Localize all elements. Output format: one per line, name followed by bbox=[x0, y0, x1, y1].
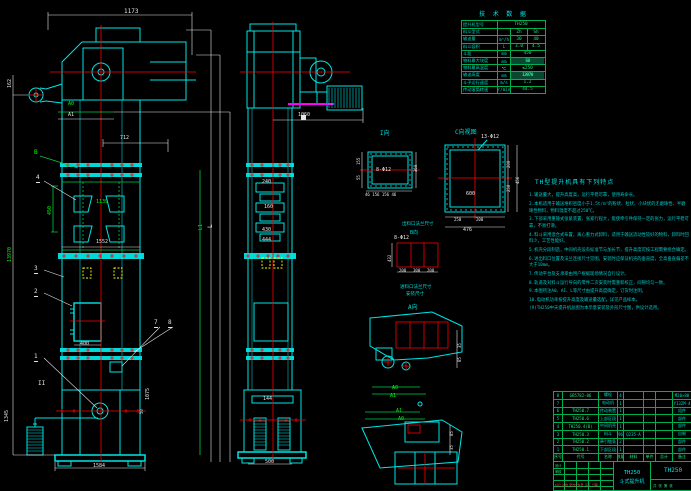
label-view-b: B向 bbox=[410, 231, 418, 236]
tech-table-row: 料斗容积L3.04.5 bbox=[462, 43, 545, 50]
tech-table-row: 料斗型式ZhSh bbox=[462, 28, 545, 35]
parts-list-cell bbox=[624, 423, 644, 430]
feature-note-item: 3.下部采用重锤式张紧装置，张紧行程大，能使牵引件保持一定的张力，运行平稳可靠，… bbox=[529, 217, 689, 230]
parts-list-cell: 上部区段 bbox=[599, 415, 618, 422]
tech-table-title: 技 术 数 据 bbox=[461, 9, 546, 18]
parts-list-cell bbox=[656, 400, 673, 407]
dim-1139: 1139 bbox=[96, 200, 108, 205]
dim-l: L bbox=[208, 224, 214, 228]
parts-list-cell bbox=[656, 392, 673, 399]
dim-1075: 1075 bbox=[146, 388, 151, 400]
dim-1345: 1345 bbox=[5, 410, 10, 422]
tech-cell: 输送量 bbox=[462, 36, 497, 42]
parts-list-table: 8GB5782-86螺栓4M20×807电动机1Y132M-46TH250.7传… bbox=[553, 391, 691, 462]
parts-list-row: 3TH250.3料斗96Q235-A自制 bbox=[554, 431, 691, 439]
dim-85-lower: 85 bbox=[450, 431, 454, 436]
dim-432: 432 bbox=[388, 255, 392, 262]
tech-table-row: 提升机型号TH250 bbox=[462, 21, 545, 28]
parts-list-row: 6TH250.7传动装置1组件 bbox=[554, 408, 691, 416]
tech-cell: 30 bbox=[510, 36, 527, 42]
cad-sheet: 1173162A0A1712B44501139155232400781II107… bbox=[0, 0, 691, 491]
tech-cell: mm bbox=[497, 58, 510, 64]
parts-list-cell bbox=[624, 392, 644, 399]
product-name: 斗式提升机 bbox=[619, 478, 644, 485]
dim-250r-c: 250 bbox=[507, 185, 511, 192]
balloon-1: 1 bbox=[34, 354, 38, 362]
tech-cell: 料斗型式 bbox=[462, 29, 497, 35]
tech-cell: 50 bbox=[510, 58, 544, 64]
note-inlet-size: 安装尺寸 bbox=[406, 293, 424, 298]
parts-list-cell: 部件 bbox=[673, 439, 691, 446]
parts-list-cell bbox=[656, 415, 673, 422]
dim-476-c: 476 bbox=[463, 228, 472, 233]
label-view-a: A向 bbox=[408, 305, 418, 311]
dim-200a: 200 bbox=[399, 269, 406, 273]
feature-note-item: 4.料斗采用混合式布置，离心重力式卸料，适用于输送流动性较好的物料，卸料时回料少… bbox=[529, 233, 689, 246]
tech-cell: m/s bbox=[497, 80, 510, 86]
label-a1-lower: A1 bbox=[396, 409, 402, 414]
parts-list-cell bbox=[644, 446, 656, 453]
note-8-phi12-i: 8-Φ12 bbox=[376, 168, 391, 173]
drawing-number: TH250 bbox=[664, 467, 682, 474]
note-inlet-flange: 进料口法兰尺寸 bbox=[400, 286, 432, 291]
tech-cell bbox=[497, 29, 510, 35]
tech-cell: 斗距 bbox=[462, 51, 497, 57]
dim-1584: 1584 bbox=[93, 464, 105, 469]
parts-list-cell: 中间机壳 bbox=[599, 423, 618, 430]
tech-table-grid: 提升机型号TH250料斗型式ZhSh输送量m³/h3040料斗容积L3.04.5… bbox=[461, 20, 546, 94]
tech-cell: ≤250 bbox=[510, 65, 544, 71]
parts-list-cell: 6 bbox=[554, 408, 563, 415]
dim-240: 240 bbox=[262, 180, 271, 185]
feature-notes-list: 1.输送量大，提升高度高，运行平稳可靠，使用寿命长。2.本机适用于输送堆积密度小… bbox=[529, 193, 689, 313]
dim-1060: 1060 bbox=[298, 113, 310, 118]
parts-list-cell: Q235-A bbox=[624, 431, 644, 438]
tech-cell: 传动滚筒转速 bbox=[462, 87, 497, 93]
dim-155-i: 155 bbox=[357, 158, 361, 165]
parts-list-row: 1TH250.1下部区段1部件 bbox=[554, 446, 691, 454]
dim-144: 144 bbox=[263, 397, 272, 402]
parts-list-cell bbox=[644, 392, 656, 399]
tech-cell: 13970 bbox=[510, 72, 544, 78]
dim-85-upper: 85 bbox=[458, 357, 462, 362]
tech-cell: 输送高度 bbox=[462, 72, 497, 78]
balloon-2: 2 bbox=[34, 289, 38, 297]
parts-list-cell: 下部区段 bbox=[599, 446, 618, 453]
parts-list-cell bbox=[624, 415, 644, 422]
parts-list-cell: 序号 bbox=[554, 454, 563, 461]
parts-list-cell: Y132M-4 bbox=[673, 400, 691, 407]
tech-cell: 3.0 bbox=[510, 44, 527, 50]
sheet-count: 共 张 第 张 bbox=[653, 483, 673, 488]
parts-list-cell: 牵引链条 bbox=[599, 439, 618, 446]
feature-note-item: 6.进出料口位置及法兰连接尺寸见图，安装时应保证机壳的垂直度，全高垂直偏差不大于… bbox=[529, 257, 689, 270]
dim-300a: 300 bbox=[413, 269, 420, 273]
parts-list-cell: 代号 bbox=[563, 454, 599, 461]
tech-cell: 1.2 bbox=[510, 80, 544, 86]
parts-list-cell bbox=[656, 408, 673, 415]
parts-list-cell bbox=[563, 400, 599, 407]
parts-list-row: 8GB5782-86螺栓4M20×80 bbox=[554, 392, 691, 400]
drawing-name-box: TH250 斗式提升机 bbox=[614, 462, 651, 491]
tech-cell: TH250 bbox=[497, 21, 544, 28]
tech-cell: 料斗容积 bbox=[462, 44, 497, 50]
parts-list-row: 4TH250.4(B)中间机壳1部件 bbox=[554, 423, 691, 431]
parts-list-cell: 螺栓 bbox=[599, 392, 618, 399]
feature-note-item: 10.电动机功率按提升高度及输送量选配，详见产品样本。 bbox=[529, 298, 689, 305]
parts-list-cell: GB5782-86 bbox=[563, 392, 599, 399]
parts-list-row: 2TH250.2牵引链条2部件 bbox=[554, 439, 691, 447]
feature-note-item: 2.本机适用于输送堆积密度小于1.5t/m³的粉状、粒状、小块状的无磨琢性、半磨… bbox=[529, 202, 689, 215]
parts-list-cell: 1 bbox=[554, 446, 563, 453]
parts-list-cell: 单件 bbox=[644, 454, 656, 461]
feature-note-item: (9)TH250中天提升机总图为本示意安装及外形尺寸图，供设计选用。 bbox=[529, 306, 689, 313]
revision-marks-row: 标记 处数 更改文件号 签字 日期 bbox=[555, 482, 598, 487]
tech-cell: 44.5 bbox=[510, 87, 544, 93]
feature-note-item: 7.传动平台及支承梁由用户根据现场情况自行设计。 bbox=[529, 272, 689, 279]
parts-list-cell bbox=[644, 423, 656, 430]
label-b-view: B bbox=[34, 150, 38, 156]
parts-list-cell: 3 bbox=[554, 431, 563, 438]
label-a0-upper: A0 bbox=[392, 386, 398, 391]
tech-cell: 450 bbox=[510, 51, 544, 57]
feature-note-item: 9.本图所注A0、A1、L等尺寸由提升高度确定，订货时注明。 bbox=[529, 289, 689, 296]
dim-total-height: 13970 bbox=[8, 247, 13, 262]
tech-cell: 物料最高温度 bbox=[462, 65, 497, 71]
tech-cell: m³/h bbox=[497, 36, 510, 42]
parts-list-cell: 7 bbox=[554, 400, 563, 407]
balloon-8: 8 bbox=[168, 320, 172, 328]
feature-notes-title: TH型提升机具有下列特点 bbox=[535, 178, 689, 187]
parts-list-cell: 电动机 bbox=[599, 400, 618, 407]
dim-500: 500 bbox=[265, 460, 274, 465]
feature-note-item: 8.轨道及对料斗运行导向的零件二次安装时需重新校正，间隙均匀一致。 bbox=[529, 281, 689, 288]
section-mark-ii: II bbox=[38, 381, 45, 387]
parts-list-cell: 备注 bbox=[673, 454, 691, 461]
dim-1552: 1552 bbox=[96, 240, 108, 245]
drawing-number-box: TH250 共 张 第 张 bbox=[651, 462, 691, 491]
dim-55-i: 55 bbox=[357, 175, 361, 180]
parts-list-cell: 8 bbox=[554, 392, 563, 399]
dim-35-lower: 35 bbox=[450, 445, 454, 450]
tech-cell: Sh bbox=[527, 29, 544, 35]
tech-cell: 物料最大块度 bbox=[462, 58, 497, 64]
tech-cell: L bbox=[497, 44, 510, 50]
tech-table-row: 输送高度mm13970 bbox=[462, 71, 545, 78]
dim-430: 430 bbox=[262, 228, 271, 233]
balloon-4: 4 bbox=[36, 175, 40, 183]
dim-360-i: 360 bbox=[414, 165, 418, 172]
tech-cell: 4.5 bbox=[527, 44, 544, 50]
title-block: 设计 审核 标记 处数 更改文件号 签字 日期 TH250 斗式提升机 TH25… bbox=[553, 461, 691, 491]
dim-l1: L1 bbox=[199, 224, 204, 230]
dim-712: 712 bbox=[120, 136, 129, 141]
dim-160: 160 bbox=[264, 205, 273, 210]
parts-list-cell: 组件 bbox=[673, 408, 691, 415]
parts-list-cell bbox=[656, 431, 673, 438]
parts-list-cell bbox=[656, 439, 673, 446]
parts-list-cell bbox=[644, 431, 656, 438]
parts-list-row: 7电动机1Y132M-4 bbox=[554, 400, 691, 408]
parts-list-cell: TH250.4(B) bbox=[563, 423, 599, 430]
label-a1-upper: A1 bbox=[390, 394, 396, 399]
parts-list-cell bbox=[644, 408, 656, 415]
dim-600-c: 600 bbox=[466, 192, 475, 197]
parts-list-cell bbox=[644, 439, 656, 446]
parts-list-cell: 总计 bbox=[656, 454, 673, 461]
parts-list-cell: 2 bbox=[554, 439, 563, 446]
tech-cell: mm bbox=[497, 72, 510, 78]
note-8-phi12-b: 8-Φ12 bbox=[394, 236, 409, 241]
label-view-c: C向视图 bbox=[455, 130, 477, 136]
parts-list-cell bbox=[644, 400, 656, 407]
parts-list-cell: 传动装置 bbox=[599, 408, 618, 415]
label-a0-lower: A0 bbox=[398, 417, 404, 422]
note-13-phi12: 13-Φ12 bbox=[481, 135, 499, 140]
tech-table-row: 物料最高温度℃≤250 bbox=[462, 64, 545, 71]
tech-cell: 斗子运行速度 bbox=[462, 80, 497, 86]
balloon-3: 3 bbox=[34, 266, 38, 274]
balloon-7: 7 bbox=[154, 320, 158, 328]
tech-table-row: 物料最大块度mm50 bbox=[462, 57, 545, 64]
dim-50: 50 bbox=[140, 409, 144, 414]
parts-list-cell bbox=[624, 400, 644, 407]
dim-456-c: 456 bbox=[516, 177, 520, 184]
parts-list-cell: 部件 bbox=[673, 423, 691, 430]
label-view-i: I向 bbox=[380, 131, 390, 137]
dim-200b: 200 bbox=[427, 269, 434, 273]
dim-250-c: 250 bbox=[454, 218, 461, 222]
parts-list-cell bbox=[656, 423, 673, 430]
feature-note-item: 5.机壳分段制造，中间机壳设有标准节与加长节，提升高度可按工程需要组合确定。 bbox=[529, 248, 689, 255]
parts-list-row: 5TH250.6上部区段1部件 bbox=[554, 415, 691, 423]
sig-check-label: 审核 bbox=[555, 469, 561, 474]
parts-list-cell bbox=[624, 439, 644, 446]
dim-i-bottom: 46 156 156 46 bbox=[365, 193, 396, 197]
dim-200r-c: 200 bbox=[507, 161, 511, 168]
dim-1173: 1173 bbox=[124, 9, 138, 15]
tech-table-row: 斗子运行速度m/s1.2 bbox=[462, 79, 545, 86]
feature-note-item: 1.输送量大，提升高度高，运行平稳可靠，使用寿命长。 bbox=[529, 193, 689, 200]
parts-list-cell bbox=[644, 415, 656, 422]
tech-cell: 40 bbox=[527, 36, 544, 42]
parts-list-cell: TH250.2 bbox=[563, 439, 599, 446]
parts-list-cell: TH250.3 bbox=[563, 431, 599, 438]
label-a1-head: A1 bbox=[68, 113, 74, 118]
parts-list-cell: TH250.1 bbox=[563, 446, 599, 453]
dim-400: 400 bbox=[80, 342, 89, 347]
product-model: TH250 bbox=[624, 470, 641, 476]
parts-list-cell: 部件 bbox=[673, 415, 691, 422]
parts-list-cell bbox=[656, 446, 673, 453]
note-outlet-flange: 出料口法兰尺寸 bbox=[402, 223, 434, 228]
parts-list-cell bbox=[624, 446, 644, 453]
parts-list-cell: 4 bbox=[554, 423, 563, 430]
tech-cell: Zh bbox=[510, 29, 527, 35]
tech-table-row: 输送量m³/h3040 bbox=[462, 35, 545, 42]
parts-list-cell: 料斗 bbox=[599, 431, 618, 438]
dim-444: 444 bbox=[262, 238, 271, 243]
label-a0-head: A0 bbox=[68, 102, 74, 107]
parts-list-cell: 5 bbox=[554, 415, 563, 422]
tech-cell: ℃ bbox=[497, 65, 510, 71]
signature-grid: 设计 审核 标记 处数 更改文件号 签字 日期 bbox=[554, 462, 614, 491]
parts-list-cell: 部件 bbox=[673, 446, 691, 453]
parts-list-cell: M20×80 bbox=[673, 392, 691, 399]
sig-design-label: 设计 bbox=[555, 463, 561, 468]
dim-450: 450 bbox=[48, 206, 53, 215]
tech-table-row: 传动滚筒转速r/min44.5 bbox=[462, 86, 545, 93]
parts-list-cell: 自制 bbox=[673, 431, 691, 438]
parts-list-cell: TH250.6 bbox=[563, 415, 599, 422]
parts-list-cell: TH250.7 bbox=[563, 408, 599, 415]
parts-list-cell: 材料 bbox=[624, 454, 644, 461]
tech-table-row: 斗距mm450 bbox=[462, 50, 545, 57]
tech-cell: r/min bbox=[497, 87, 510, 93]
dim-35-upper: 35 bbox=[458, 343, 462, 348]
parts-list-cell: 名称 bbox=[599, 454, 618, 461]
dim-162: 162 bbox=[8, 79, 13, 88]
dim-200-c: 200 bbox=[476, 218, 483, 222]
technical-data-table: 技 术 数 据 提升机型号TH250料斗型式ZhSh输送量m³/h3040料斗容… bbox=[461, 9, 546, 94]
tech-cell: mm bbox=[497, 51, 510, 57]
parts-list-cell bbox=[624, 408, 644, 415]
tech-cell: 提升机型号 bbox=[462, 21, 497, 28]
feature-notes: TH型提升机具有下列特点 1.输送量大，提升高度高，运行平稳可靠，使用寿命长。2… bbox=[529, 178, 689, 315]
